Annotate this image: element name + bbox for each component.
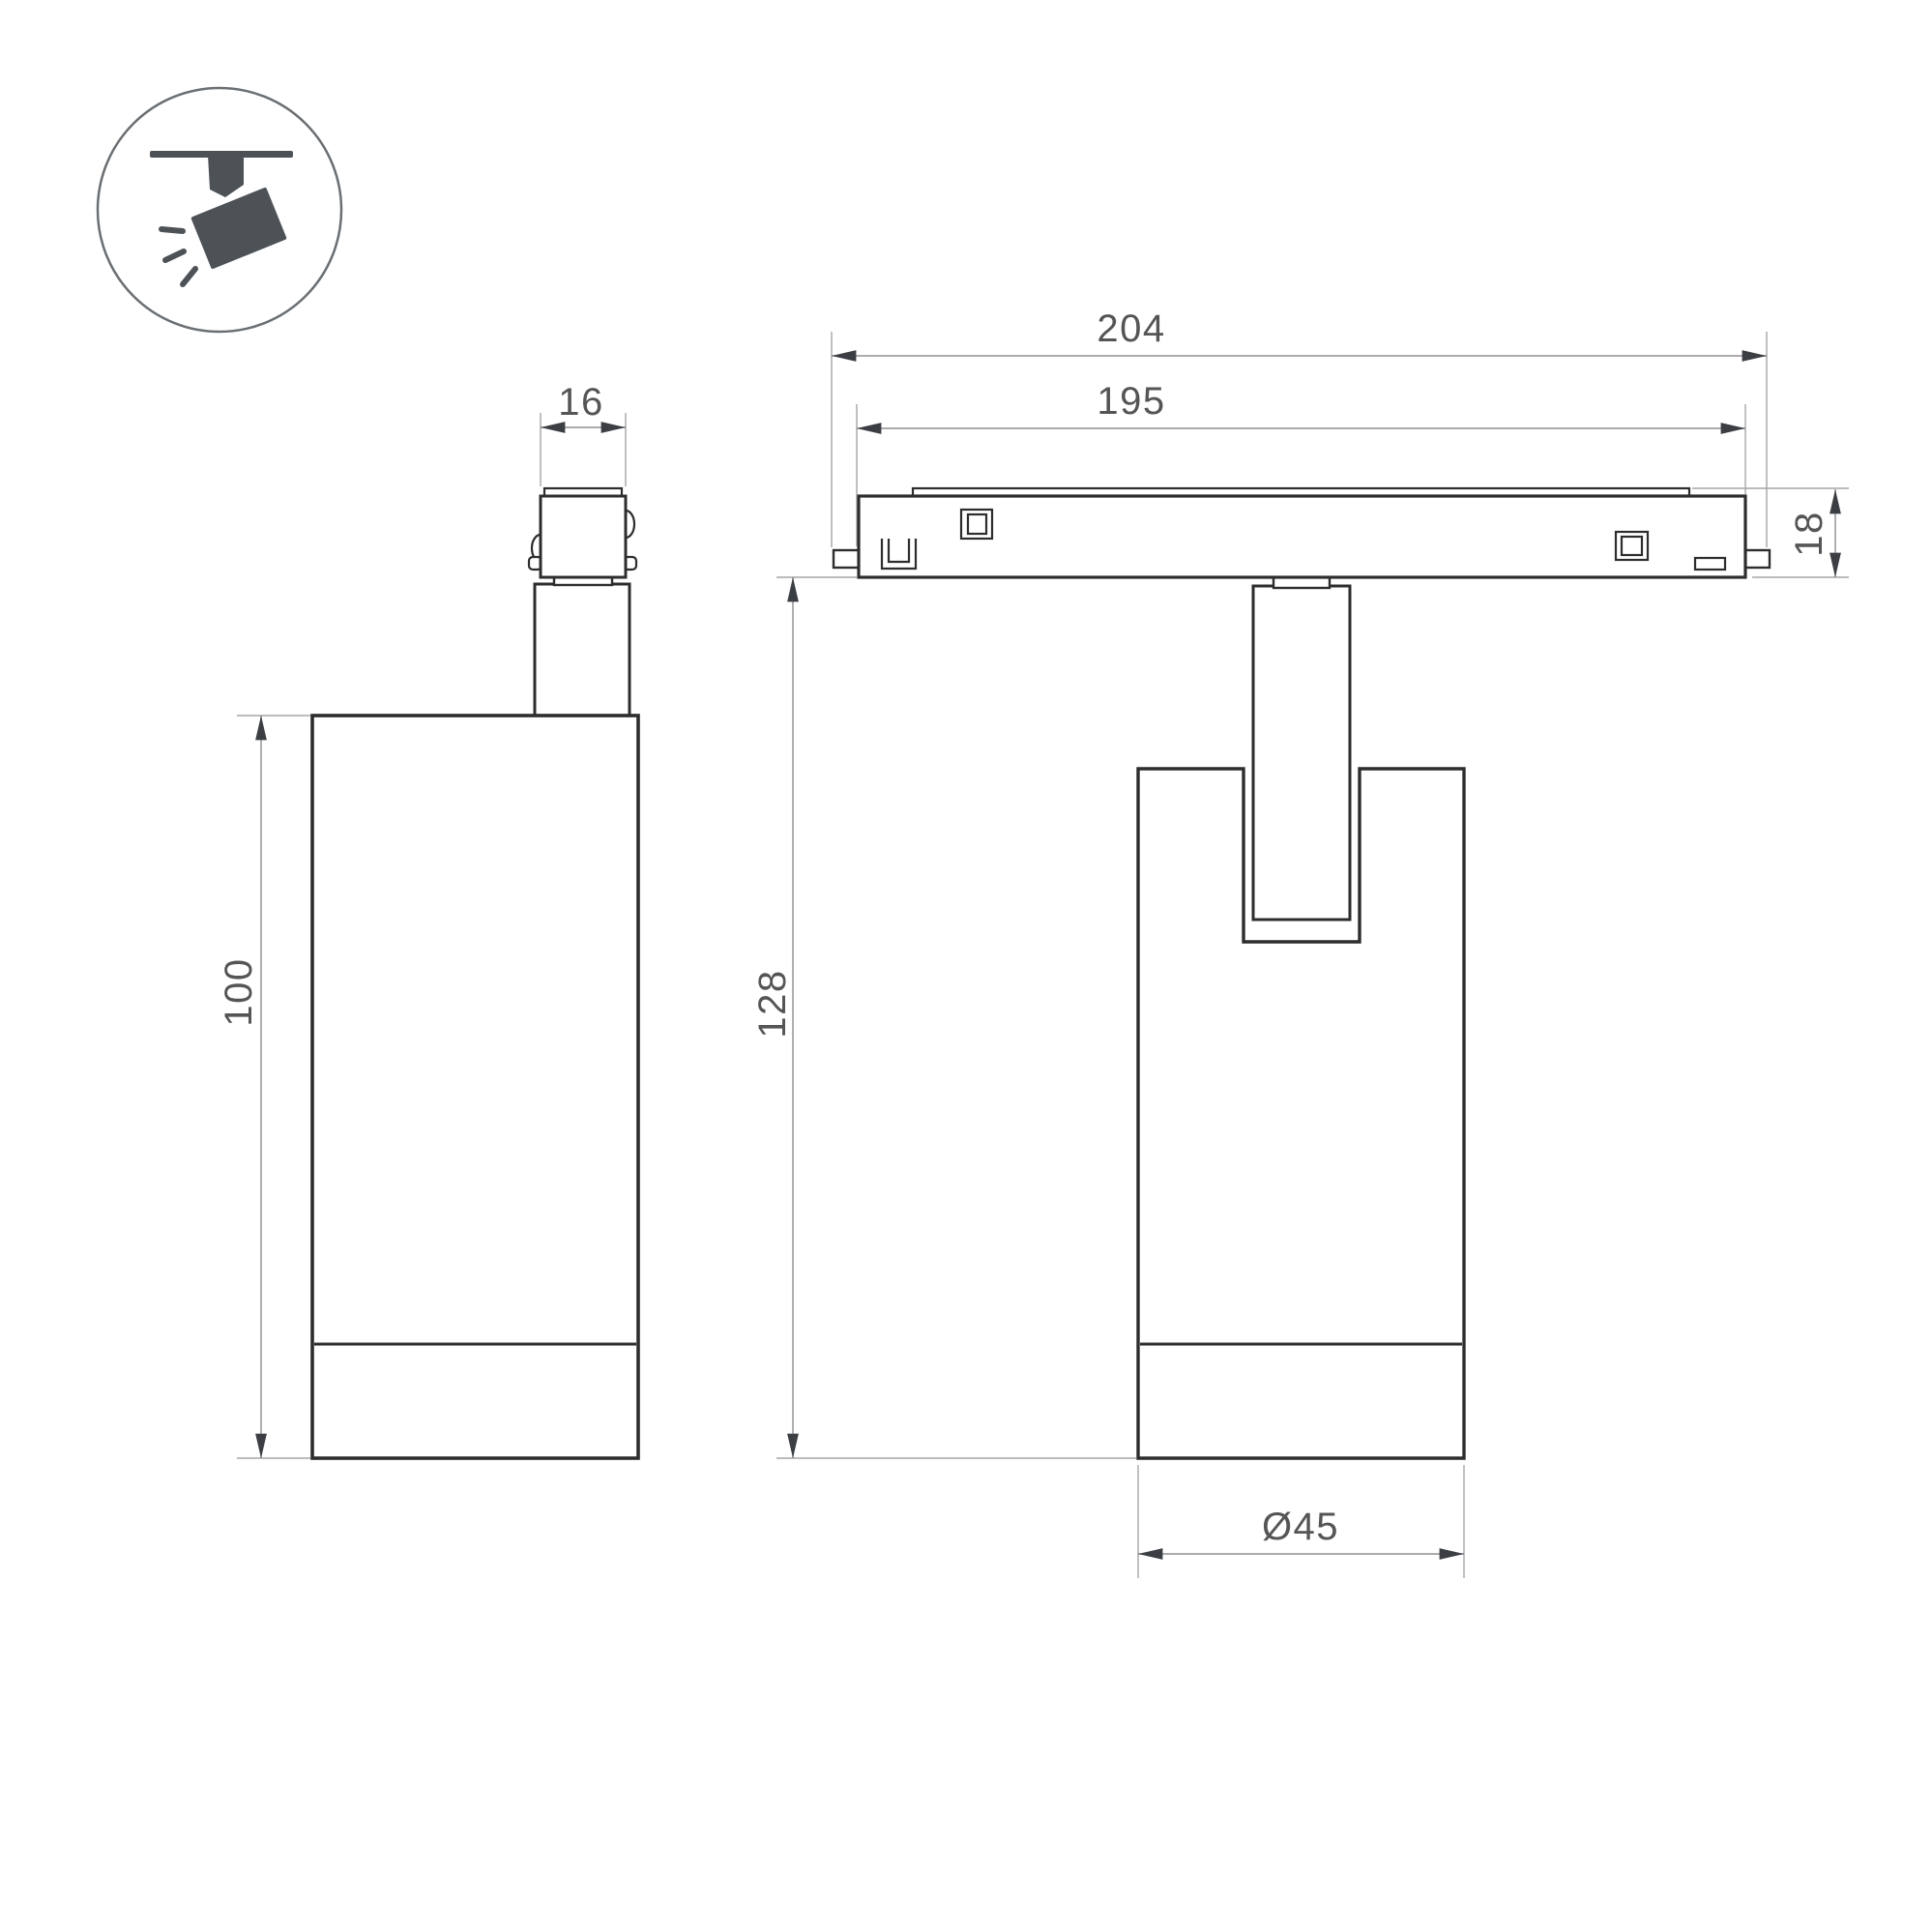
rail-window-right-inner: [1622, 537, 1642, 555]
side-body: [312, 716, 638, 1458]
rail-slot-right: [1695, 558, 1725, 570]
track-spotlight-icon: [98, 88, 341, 332]
drawing-canvas: 204 195 16 18 128 100 Ø45: [0, 0, 1932, 1932]
dim-label-16: 16: [558, 381, 604, 424]
track-rail-tab-right: [1745, 550, 1770, 568]
dim-label-128: 128: [751, 969, 794, 1038]
side-view: [312, 488, 638, 1458]
dim-label-18: 18: [1788, 511, 1830, 557]
light-ray-icon: [161, 229, 183, 231]
track-rail-tab-left: [834, 550, 859, 568]
rail-window-left-inner: [968, 514, 986, 534]
side-pivot-stem: [535, 584, 629, 717]
front-view: [834, 488, 1770, 1458]
dim-label-195: 195: [1097, 380, 1165, 423]
dim-label-204: 204: [1097, 307, 1165, 350]
dim-label-100: 100: [218, 957, 260, 1026]
dim-label-diameter-45: Ø45: [1262, 1506, 1339, 1548]
front-pivot-stem: [1253, 586, 1350, 920]
side-adapter-box: [541, 496, 626, 577]
front-neck: [1273, 577, 1330, 588]
technical-drawing: 204 195 16 18 128 100 Ø45: [0, 0, 1932, 1932]
